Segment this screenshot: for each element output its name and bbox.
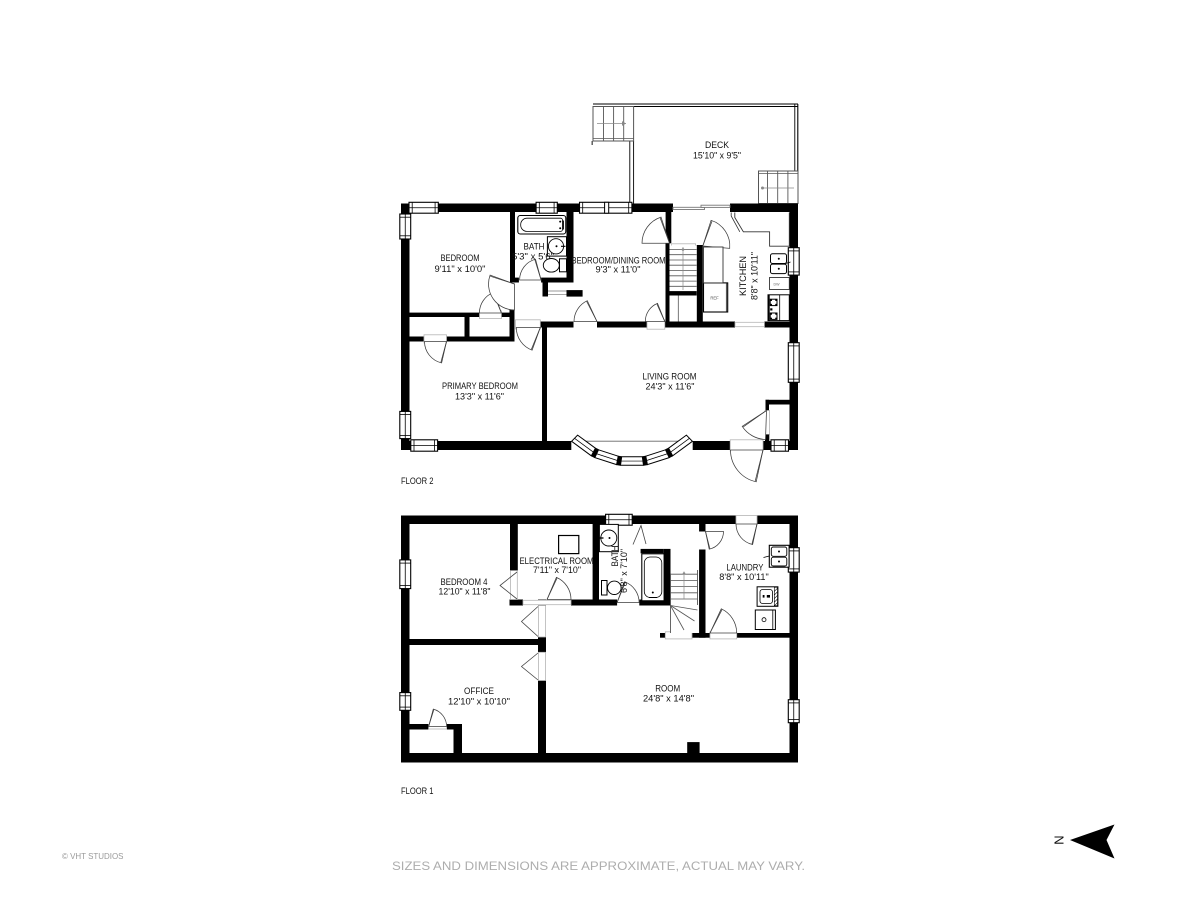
svg-text:KITCHEN: KITCHEN [738,256,749,296]
svg-text:24'8" x 14'8": 24'8" x 14'8" [643,694,694,705]
svg-text:12'10" x 10'10": 12'10" x 10'10" [448,697,510,708]
svg-text:© VHT STUDIOS: © VHT STUDIOS [62,851,124,861]
svg-text:9'3" x 11'0": 9'3" x 11'0" [596,265,641,276]
svg-text:15'10" x 9'5": 15'10" x 9'5" [693,151,741,162]
svg-text:REF: REF [710,296,719,301]
svg-text:9'11" x 10'0": 9'11" x 10'0" [435,264,486,275]
svg-text:6'8" x 7'10": 6'8" x 7'10" [619,549,630,593]
svg-text:FLOOR 2: FLOOR 2 [401,476,434,487]
svg-text:SIZES AND DIMENSIONS ARE APPRO: SIZES AND DIMENSIONS ARE APPROXIMATE, AC… [392,859,805,873]
svg-text:5'3" x 5'6": 5'3" x 5'6" [512,252,554,263]
svg-text:FLOOR 1: FLOOR 1 [401,786,434,797]
svg-text:7'11" x 7'10": 7'11" x 7'10" [533,565,581,576]
svg-text:8'8" x 10'11": 8'8" x 10'11" [750,252,761,300]
svg-text:24'3" x 11'6": 24'3" x 11'6" [646,382,695,393]
svg-text:OFFICE: OFFICE [464,686,494,697]
svg-text:DECK: DECK [705,140,730,151]
svg-text:12'10" x 11'8": 12'10" x 11'8" [439,587,491,598]
svg-text:13'3" x 11'6": 13'3" x 11'6" [455,392,504,403]
svg-text:8'8" x 10'11": 8'8" x 10'11" [719,572,769,583]
svg-text:BEDROOM: BEDROOM [441,253,480,264]
svg-text:N: N [1052,835,1067,844]
svg-text:DW: DW [774,283,781,287]
svg-text:PRIMARY BEDROOM: PRIMARY BEDROOM [442,381,518,392]
